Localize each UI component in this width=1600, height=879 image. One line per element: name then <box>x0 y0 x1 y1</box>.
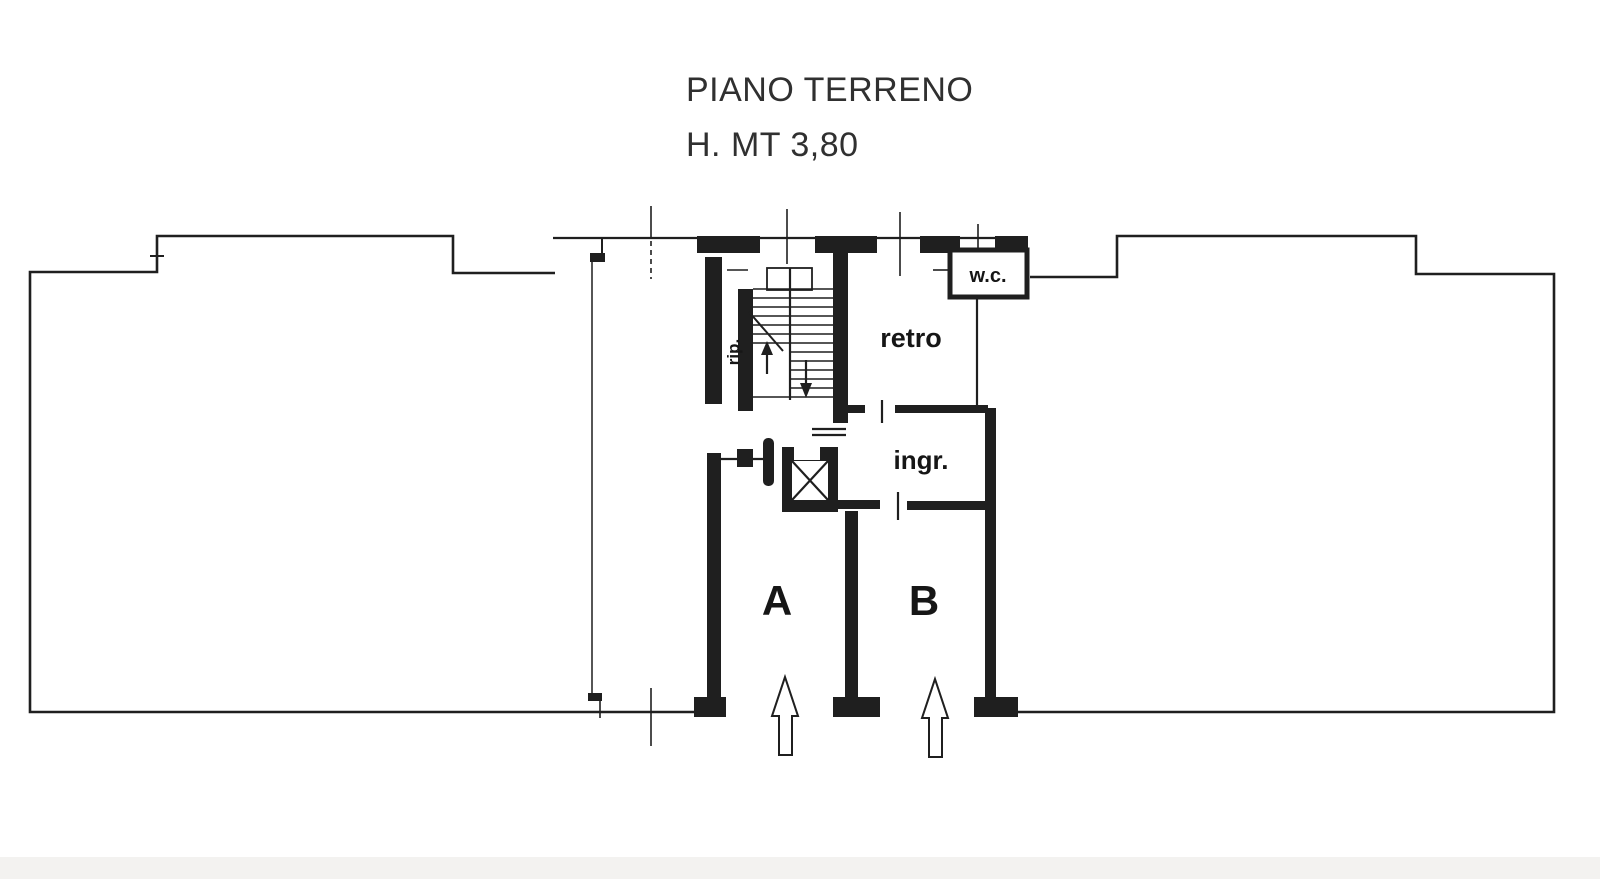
elevator-door-gap <box>794 447 820 460</box>
door-jamb <box>737 449 753 467</box>
unit-divider-wall <box>845 511 858 699</box>
plan-title-block: PIANO TERRENO H. MT 3,80 <box>686 71 973 164</box>
door-leaf <box>763 438 774 486</box>
right-room-outline <box>1018 236 1554 712</box>
unit-b-right-wall <box>985 408 996 699</box>
entrance-arrow-a-icon <box>772 677 798 755</box>
unit-a-left-wall <box>707 453 721 699</box>
staircase: rip. <box>705 240 848 435</box>
unit-a-label: A <box>762 577 792 624</box>
unit-b-label: B <box>909 577 939 624</box>
elevator-icon <box>782 447 838 512</box>
top-wall-segment <box>697 236 760 253</box>
stair-treads <box>753 289 833 397</box>
stair-threshold <box>812 429 846 435</box>
wall-footing <box>694 697 726 717</box>
plan-subtitle: H. MT 3,80 <box>686 126 859 164</box>
partition-line-group <box>588 239 605 701</box>
ingr-bottom-wall <box>838 500 880 509</box>
stair-corridor-left-wall <box>705 257 722 404</box>
wall-footing <box>833 697 880 717</box>
entrance-arrow-b-icon <box>922 679 948 757</box>
left-room-outline <box>30 236 700 712</box>
floor-plan-canvas: PIANO TERRENO H. MT 3,80 <box>0 0 1600 879</box>
ingr-bottom-wall <box>907 501 990 510</box>
stair-right-wall <box>833 240 848 423</box>
ingr-label: ingr. <box>894 445 949 475</box>
storage-corridor-label: rip. <box>724 339 743 365</box>
wc-room: w.c. <box>950 250 1027 297</box>
wall-footing <box>974 697 1018 717</box>
retro-bottom-wall <box>838 405 865 413</box>
scan-shadow-band <box>0 857 1600 879</box>
floor-plan-page: PIANO TERRENO H. MT 3,80 <box>0 0 1600 879</box>
wc-label: w.c. <box>968 265 1006 287</box>
partition-cap <box>588 693 602 701</box>
plan-title: PIANO TERRENO <box>686 71 973 109</box>
retro-label: retro <box>880 323 942 353</box>
retro-bottom-wall <box>895 405 988 413</box>
stair-up-arrow-icon <box>761 341 773 374</box>
